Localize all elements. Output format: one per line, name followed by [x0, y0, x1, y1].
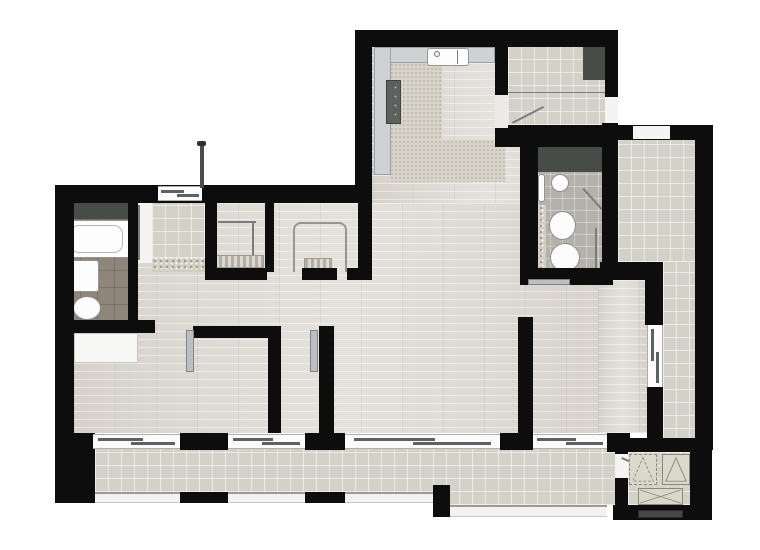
bath2-closet	[538, 147, 602, 172]
wall-bath2-left	[520, 147, 538, 283]
wall-window-stub-1	[180, 433, 228, 450]
bedroom2-door-leaf	[310, 330, 318, 372]
wall-upper-right	[605, 30, 618, 97]
terrace-railing-2	[228, 492, 305, 503]
entry-closet	[583, 45, 605, 80]
storage-hatch-symbol	[638, 488, 683, 505]
wall-leftwing-top	[55, 185, 372, 203]
hall-window	[228, 434, 305, 449]
wall-railing-stub-2	[305, 492, 345, 503]
bedroom1-window-sash	[98, 438, 143, 441]
wall-window-stub-3	[500, 433, 533, 450]
bedroom1-window-sash	[131, 442, 175, 445]
living-window-sash	[566, 442, 603, 445]
wall-loggia-a	[645, 280, 663, 325]
bath2-washbasin	[551, 174, 569, 192]
hall-window-sash	[262, 442, 301, 445]
wall-closet2-right	[358, 203, 372, 272]
wall-closets-bottom-a	[205, 268, 267, 280]
storage-shaft-symbol-2	[662, 454, 690, 485]
wall-closets-bottom-b	[302, 268, 337, 280]
wall-railing-stub-3	[433, 485, 450, 517]
laundry-window	[158, 186, 202, 201]
terrace-floor-tile	[95, 448, 433, 492]
wall-closets-bottom-c	[347, 268, 372, 280]
terrace-floor-tile-deep	[433, 448, 615, 505]
bathtub-inner	[70, 225, 123, 253]
bedroom1-window	[93, 434, 180, 449]
storage-shaft-symbol-1	[629, 454, 657, 485]
bedroom2-window-sash	[354, 438, 435, 441]
wall-bath1-right	[128, 203, 138, 322]
loggia-floor-tile-south	[663, 262, 695, 442]
laundry-window-sash	[177, 194, 199, 197]
loggia-sliding-door	[647, 325, 663, 387]
wall-window-stub-2	[305, 433, 345, 450]
bath1-washbasin	[71, 260, 99, 292]
kitchen-entry-threshold	[495, 95, 508, 128]
sink-faucet	[434, 51, 440, 57]
terrace-railing-4	[450, 505, 607, 517]
wall-upper-left	[355, 30, 372, 203]
wall-upper-top	[355, 30, 615, 47]
bedroom2-window	[345, 434, 500, 449]
cooktop-knob-2	[394, 95, 397, 98]
wall-kitchen-divider	[495, 47, 508, 95]
vent-pipe	[200, 143, 204, 188]
bath1-door-opening	[138, 203, 152, 263]
kitchen-floor-strip-h	[390, 140, 505, 182]
wall-storage-top	[613, 438, 695, 452]
wall-laundry-right	[205, 203, 217, 272]
vent-pipe-cap	[197, 141, 206, 146]
closet1-rail-line-h	[218, 221, 256, 223]
floor-living-east-wood	[598, 280, 647, 433]
wall-bath2-top	[495, 125, 618, 147]
wall-loggia-mid	[600, 262, 663, 280]
shower-glass-line	[595, 228, 597, 272]
wall-loggia-b	[647, 387, 663, 443]
wall-corner-bottom-left	[55, 433, 95, 503]
cooktop-knob-1	[394, 86, 397, 89]
kitchen-sink	[427, 48, 469, 66]
terrace-railing-3	[345, 492, 433, 503]
wall-bath1-bottom	[55, 320, 155, 333]
laundry-mosaic-strip	[152, 258, 205, 272]
laundry-floor-tile	[152, 203, 205, 258]
wall-bedroom-divider-a	[268, 326, 281, 433]
bedroom1-door-leaf	[186, 330, 194, 372]
bedroom2-window-sash	[413, 442, 491, 445]
loggia-sliding-door-sash	[651, 329, 654, 361]
wall-right-outer	[695, 125, 713, 450]
storage-vent-grille	[638, 510, 683, 518]
loggia-top-opening	[633, 126, 670, 139]
laundry-window-sash	[161, 190, 184, 193]
wall-bedroom-divider-b	[319, 326, 334, 433]
sink-divider-line	[457, 50, 458, 64]
hall-window-sash	[233, 438, 273, 441]
bath2-door-leaf	[528, 279, 570, 285]
bath2-towel-rail	[538, 174, 545, 202]
bedroom1-wardrobe	[74, 333, 138, 363]
entry-exterior-door	[605, 97, 618, 123]
cooktop-knob-4	[394, 113, 397, 116]
bath1-door-leaf-line	[138, 205, 140, 260]
terrace-railing-1	[95, 492, 180, 503]
entry-floor-divider-line	[508, 92, 605, 93]
cooktop-knob-3	[394, 104, 397, 107]
floor-plan-canvas	[0, 0, 760, 550]
living-window-sash	[537, 438, 575, 441]
loggia-sliding-door-sash	[656, 352, 659, 383]
loggia-floor-tile	[618, 140, 695, 262]
wall-closet-divider	[265, 203, 274, 272]
living-window	[533, 434, 607, 449]
wall-living-divider	[518, 317, 533, 433]
closet1-shelf-stripes	[212, 255, 264, 268]
bath1-toilet	[73, 296, 101, 320]
bath2-bidet	[549, 211, 576, 240]
wall-railing-stub-1	[180, 492, 228, 503]
